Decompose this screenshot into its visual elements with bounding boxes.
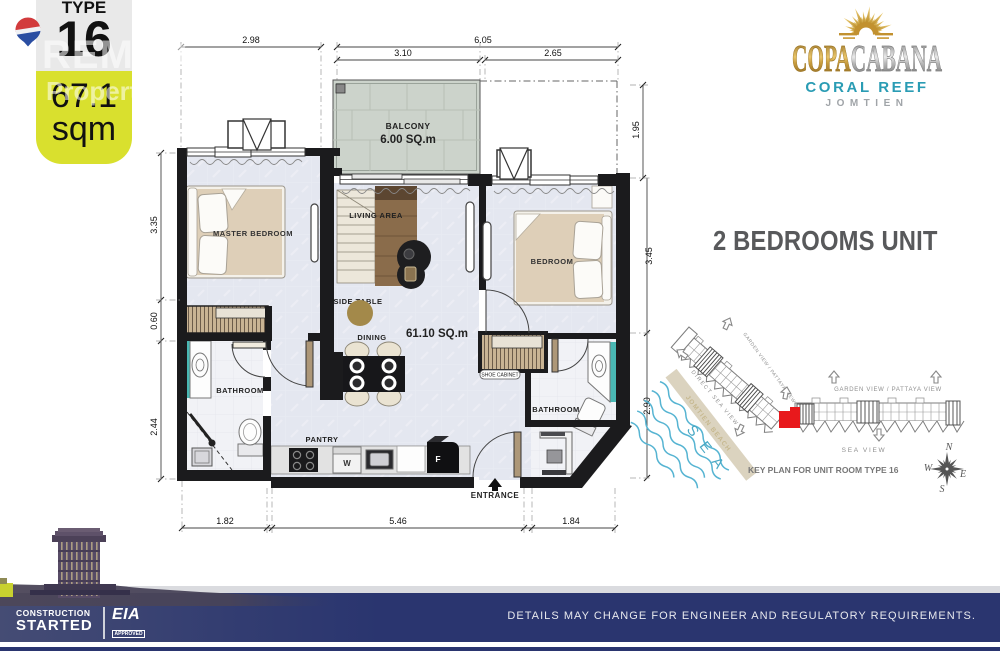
svg-text:2.44: 2.44 bbox=[149, 418, 159, 436]
svg-text:BEDROOM: BEDROOM bbox=[531, 257, 574, 266]
svg-text:CORAL REEF: CORAL REEF bbox=[805, 79, 928, 96]
svg-text:SEA VIEW: SEA VIEW bbox=[842, 447, 887, 454]
svg-text:3.45: 3.45 bbox=[644, 247, 654, 265]
svg-text:BATHROOM: BATHROOM bbox=[532, 405, 580, 414]
svg-text:2.98: 2.98 bbox=[242, 35, 260, 45]
svg-text:PANTRY: PANTRY bbox=[306, 435, 339, 444]
svg-text:MASTER BEDROOM: MASTER BEDROOM bbox=[213, 229, 293, 238]
svg-text:1.95: 1.95 bbox=[631, 121, 641, 139]
svg-text:DINING: DINING bbox=[357, 333, 386, 342]
svg-text:BATHROOM: BATHROOM bbox=[216, 386, 264, 395]
svg-text:KEY PLAN FOR UNIT ROOM TYPE 16: KEY PLAN FOR UNIT ROOM TYPE 16 bbox=[748, 465, 899, 475]
svg-text:W: W bbox=[924, 463, 934, 474]
svg-text:F: F bbox=[435, 454, 440, 464]
svg-text:JOMTIEN: JOMTIEN bbox=[826, 98, 909, 109]
svg-text:2.65: 2.65 bbox=[544, 48, 562, 58]
svg-text:N: N bbox=[945, 442, 954, 453]
svg-text:S: S bbox=[940, 484, 945, 495]
svg-text:ENTRANCE: ENTRANCE bbox=[471, 491, 520, 500]
svg-text:GARDEN VIEW / PATTAYA VIEW: GARDEN VIEW / PATTAYA VIEW bbox=[834, 387, 942, 393]
svg-text:3.35: 3.35 bbox=[149, 216, 159, 234]
svg-text:E: E bbox=[959, 469, 966, 480]
svg-text:2.90: 2.90 bbox=[642, 397, 652, 415]
svg-text:LIVING AREA: LIVING AREA bbox=[349, 211, 403, 220]
svg-text:COPACABANA: COPACABANA bbox=[792, 38, 942, 80]
svg-text:6.00 SQ.m: 6.00 SQ.m bbox=[380, 134, 436, 146]
svg-text:6.05: 6.05 bbox=[474, 35, 492, 45]
svg-text:61.10 SQ.m: 61.10 SQ.m bbox=[406, 328, 468, 340]
svg-text:W: W bbox=[343, 459, 351, 468]
svg-text:1.84: 1.84 bbox=[562, 516, 580, 526]
svg-text:BALCONY: BALCONY bbox=[386, 121, 431, 131]
svg-text:SHOE CABINET: SHOE CABINET bbox=[481, 373, 518, 379]
svg-text:3.10: 3.10 bbox=[394, 48, 412, 58]
svg-text:0.60: 0.60 bbox=[149, 312, 159, 330]
